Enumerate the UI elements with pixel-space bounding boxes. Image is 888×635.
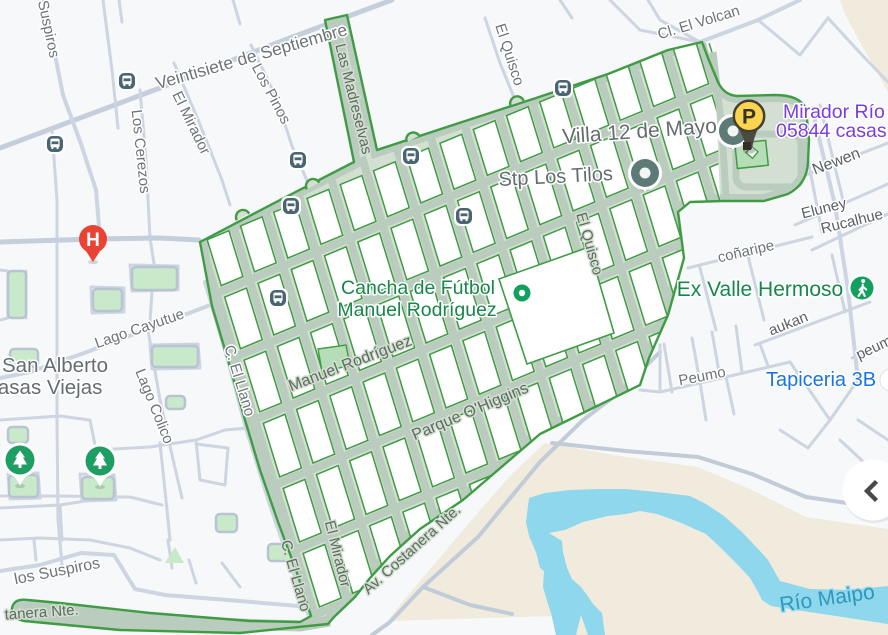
svg-text:H: H	[86, 230, 100, 251]
svg-text:P: P	[742, 106, 756, 129]
svg-text:Cancha de Fútbol: Cancha de Fútbol	[341, 277, 495, 299]
svg-text:05844 casas: 05844 casas	[776, 120, 887, 142]
svg-text:Ex Valle Hermoso: Ex Valle Hermoso	[677, 278, 844, 301]
svg-text:Manuel Rodríguez: Manuel Rodríguez	[337, 299, 496, 321]
svg-text:casas Viejas: casas Viejas	[0, 376, 102, 399]
svg-text:Tapiceria 3B: Tapiceria 3B	[766, 369, 876, 391]
svg-text:San Alberto: San Alberto	[2, 354, 108, 377]
